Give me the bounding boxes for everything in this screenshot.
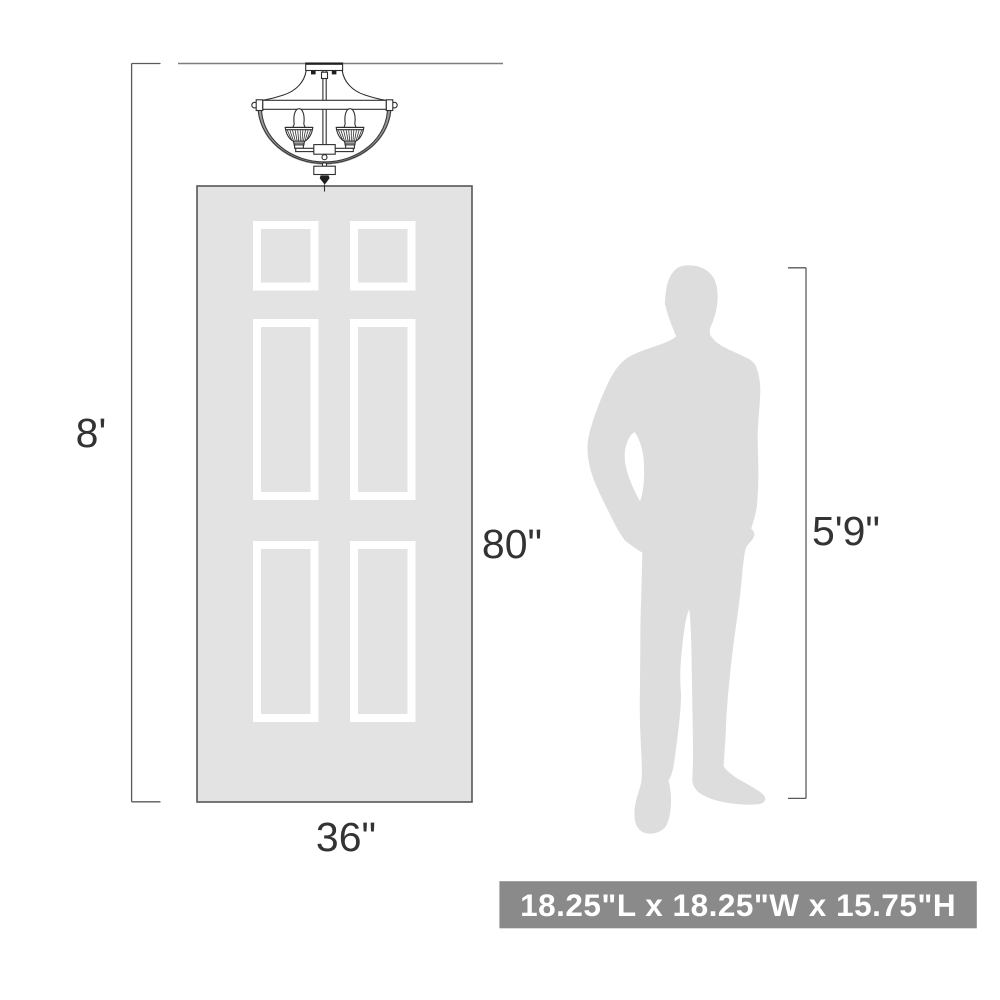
svg-text:5'9": 5'9": [812, 508, 880, 554]
svg-text:80": 80": [482, 521, 542, 567]
svg-text:8': 8': [76, 410, 107, 456]
svg-text:36": 36": [316, 814, 376, 860]
svg-text:18.25"L x 18.25"W x 15.75"H: 18.25"L x 18.25"W x 15.75"H: [520, 887, 956, 923]
